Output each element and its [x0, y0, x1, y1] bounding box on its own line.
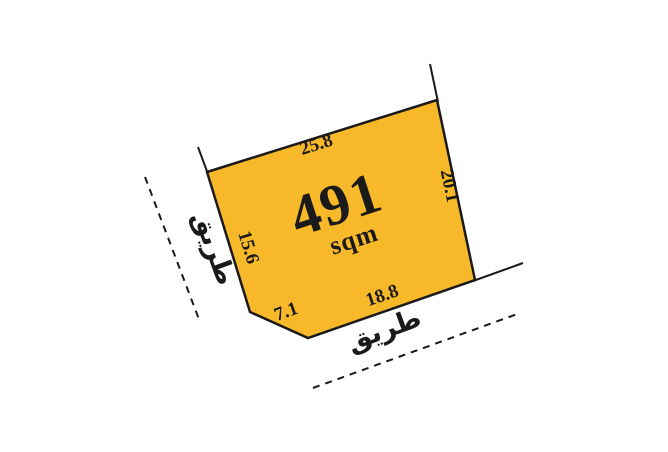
plot-map-canvas: 25.8 20.1 18.8 7.1 15.6 491 sqm طريق طري…: [0, 0, 668, 452]
extension-line-bottom-right: [473, 263, 523, 281]
extension-line-top-left: [198, 147, 208, 174]
land-plot-diagram: 25.8 20.1 18.8 7.1 15.6 491 sqm طريق طري…: [0, 0, 668, 452]
road-dashed-line-left: [145, 177, 200, 322]
extension-line-top-right: [430, 64, 438, 102]
